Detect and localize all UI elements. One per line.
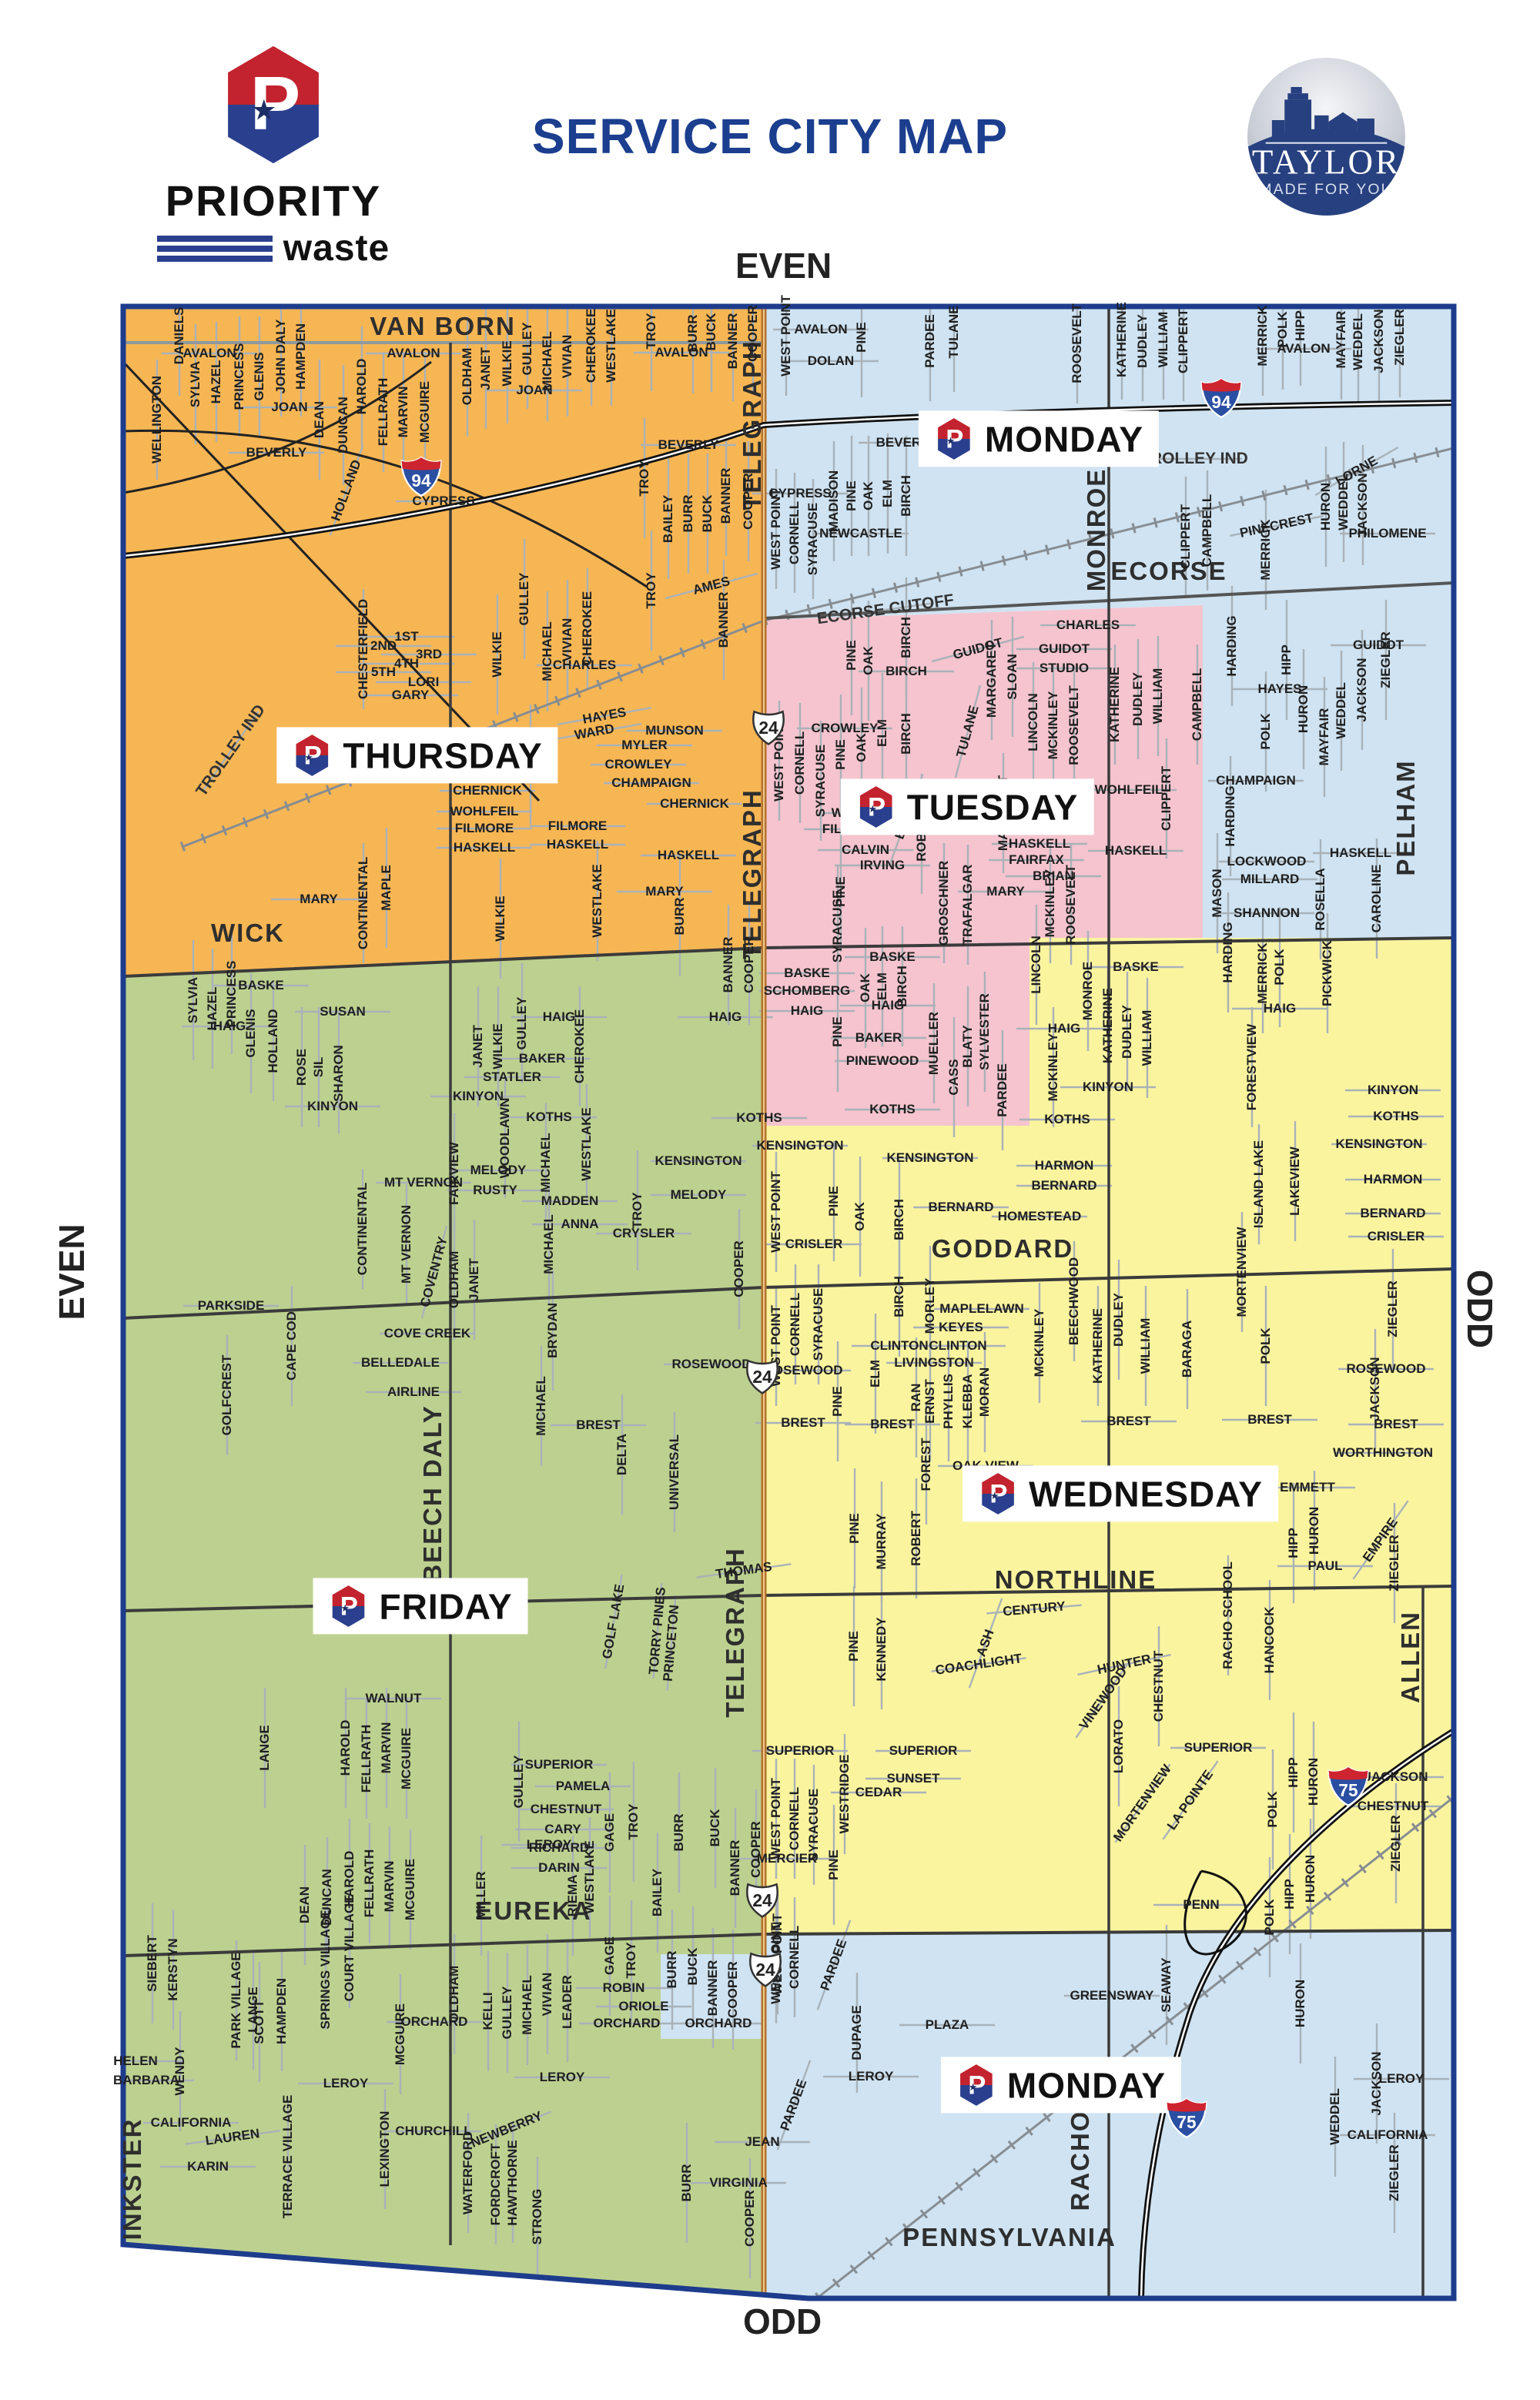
street-label: 2ND — [370, 638, 397, 654]
street-label: HURON — [1293, 1980, 1308, 2027]
street-label: OLDHAM — [447, 1251, 462, 1309]
street-label: BRYDAN — [545, 1303, 561, 1358]
street-label: KINYON — [453, 1089, 504, 1104]
street-label: DUDLEY — [1130, 672, 1146, 726]
street-label: SYRACUSE — [830, 890, 845, 962]
street-label: MCGUIRE — [393, 2003, 408, 2065]
street-label: KOTHS — [526, 1110, 572, 1125]
street-label: UNIVERSAL — [667, 1434, 682, 1510]
street-label: CORNELL — [787, 1926, 802, 1989]
street-label: PHYLLIS — [941, 1374, 956, 1429]
street-label: MORAN — [977, 1367, 993, 1417]
street-label: ROSELLA — [1313, 868, 1328, 930]
street-label: SUPERIOR — [1184, 1740, 1253, 1756]
street-label: GREENSWAY — [1070, 1988, 1154, 2003]
street-label: DELTA — [614, 1434, 630, 1475]
street-label: GULLEY — [520, 323, 535, 376]
street-label: ZIEGLER — [1392, 309, 1408, 366]
street-label: TULANE — [946, 306, 962, 359]
svg-text:24: 24 — [755, 1960, 775, 1980]
street-label: MUNSON — [645, 723, 704, 738]
street-label: GOLFCREST — [219, 1355, 235, 1436]
svg-text:24: 24 — [752, 1890, 772, 1910]
street-label: FAIRVIEW — [447, 1142, 462, 1205]
street-label: ERNST — [922, 1379, 938, 1424]
street-label: MICHAEL — [538, 1133, 554, 1192]
street-label: PELHAM — [1391, 759, 1421, 875]
street-label: AVALON — [794, 322, 847, 337]
street-label: MILLARD — [1240, 872, 1299, 887]
street-label: MADDEN — [541, 1193, 599, 1209]
street-label: ELM — [868, 1360, 883, 1387]
service-day-text: FRIDAY — [380, 1585, 513, 1627]
street-label: RAN — [909, 1384, 924, 1412]
street-label: POLK — [1265, 1791, 1281, 1827]
street-label: LEADER — [560, 1975, 575, 2029]
street-label: GULLEY — [517, 573, 532, 626]
street-label: BIRCH — [899, 617, 914, 658]
street-label: KATHERINE — [1114, 302, 1130, 377]
street-label: CRYSLER — [613, 1226, 675, 1241]
street-label: CLINTON — [929, 1338, 986, 1354]
street-label: PARK VILLAGE — [229, 1952, 244, 2048]
svg-text:★: ★ — [340, 1602, 350, 1614]
street-label: ROBIN — [603, 1980, 645, 1996]
street-label: MONROE — [1080, 962, 1096, 1021]
street-label: BANNER — [716, 592, 731, 648]
street-label: RIEMA — [565, 1875, 581, 1917]
street-label: HASKELL — [454, 840, 515, 855]
street-label: AIRLINE — [387, 1384, 440, 1400]
street-label: WELLINGTON — [149, 376, 165, 464]
street-label: CHESTNUT — [531, 1802, 602, 1817]
street-label: WILKIE — [490, 1023, 506, 1069]
service-day-label-friday: P★FRIDAY — [313, 1578, 528, 1634]
street-label: ORCHARD — [401, 2014, 468, 2030]
service-day-text: MONDAY — [985, 418, 1143, 460]
street-label: OAK — [861, 646, 876, 675]
street-label: WILKIE — [500, 340, 515, 387]
street-label: DUNCAN — [336, 397, 351, 454]
street-label: AVALON — [1277, 341, 1330, 356]
street-label: HELEN — [113, 2054, 158, 2069]
street-label: KOTHS — [1044, 1112, 1090, 1127]
street-label: ELM — [875, 719, 890, 747]
street-label: VIRGINIA — [709, 2175, 768, 2191]
service-day-label-tuesday: P★TUESDAY — [841, 778, 1094, 835]
street-label: TROY — [624, 1942, 639, 1978]
street-label: HAMPDEN — [293, 323, 309, 390]
street-label: MICHAEL — [541, 1214, 557, 1274]
street-label: BANNER — [725, 313, 741, 370]
street-label: CALVIN — [842, 842, 889, 858]
street-label: ELM — [880, 480, 896, 507]
street-label: MELODY — [671, 1187, 727, 1203]
street-label: MARGARET — [984, 642, 999, 718]
street-label: JOAN — [271, 400, 307, 415]
street-label: MAYFAIR — [1317, 708, 1332, 766]
street-label: SUPERIOR — [766, 1743, 835, 1759]
street-label: DUDLEY — [1135, 314, 1150, 368]
street-label: STATLER — [483, 1069, 541, 1085]
street-label: MERRICK — [1255, 305, 1270, 366]
street-label: PARDEE — [922, 314, 938, 368]
street-label: HURON — [1306, 1758, 1321, 1806]
street-label: BANNER — [728, 1840, 743, 1896]
street-label: KENSINGTON — [654, 1153, 742, 1169]
street-label: MCKINLEY — [1046, 1033, 1061, 1102]
street-label: PINE — [826, 1849, 842, 1880]
street-label: JANET — [467, 1258, 482, 1301]
street-label: HAYES — [1257, 681, 1301, 697]
street-label: ROOSEVELT — [1066, 685, 1082, 765]
street-label: ORCHARD — [594, 2016, 661, 2031]
street-label: HASKELL — [1330, 845, 1391, 861]
street-label: TERRACE VILLAGE — [280, 2095, 296, 2219]
street-label: WESTLAKE — [604, 309, 619, 382]
street-label: BELLEDALE — [361, 1355, 440, 1371]
street-label: HAWTHORNE — [505, 2140, 521, 2225]
street-label: WATERFORD — [460, 2131, 476, 2214]
street-label: ZIEGLER — [1378, 631, 1394, 688]
street-label: BREST — [870, 1417, 915, 1432]
street-label: BREST — [1374, 1417, 1418, 1432]
street-label: KENSINGTON — [1335, 1136, 1422, 1152]
street-label: CORNELL — [792, 731, 808, 795]
street-label: FORESTVIEW — [1244, 1024, 1260, 1110]
street-label: CONTINENTAL — [356, 857, 371, 950]
street-label: CONTINENTAL — [355, 1183, 370, 1276]
street-label: HAIG — [213, 1019, 246, 1034]
street-label: CEDAR — [855, 1785, 902, 1800]
street-label: DUDLEY — [1120, 1005, 1135, 1059]
street-label: LEROY — [540, 2070, 585, 2085]
street-label: BAKER — [855, 1030, 902, 1046]
highway-shield-us-24: 24 — [748, 707, 789, 752]
street-label: HARDING — [1220, 922, 1236, 982]
street-label: OAK — [852, 1202, 868, 1231]
street-label: HASKELL — [547, 837, 608, 852]
street-label: RUSTY — [473, 1183, 517, 1198]
street-label: SHANNON — [1234, 905, 1300, 921]
street-label: MCGUIRE — [417, 381, 433, 443]
street-label: LEROY — [527, 1837, 572, 1853]
street-label: WILKIE — [493, 895, 508, 942]
street-label: ZIEGLER — [1385, 1280, 1401, 1337]
street-label: SYRACUSE — [805, 503, 821, 575]
street-label: JACKSON — [1354, 658, 1370, 721]
svg-text:24: 24 — [752, 1367, 772, 1387]
street-label: KEYES — [939, 1320, 983, 1335]
street-label: WEST POINT — [768, 488, 784, 570]
street-label: SPRINGS VILLAGE — [318, 1910, 333, 2030]
street-label: BARAGA — [1180, 1321, 1195, 1378]
street-label: LANGE — [257, 1725, 273, 1771]
street-label: PINEWOOD — [846, 1053, 919, 1069]
street-label: BURR — [672, 897, 688, 935]
street-label: JOAN — [516, 383, 552, 398]
street-label: PARDEE — [995, 1063, 1010, 1117]
street-label: MCKINLEY — [1043, 869, 1058, 938]
street-label: JEAN — [745, 2134, 779, 2150]
street-label: HASKELL — [1105, 843, 1167, 859]
street-label: COOPER — [742, 936, 757, 993]
street-label: EMMETT — [1280, 1480, 1335, 1495]
street-label: WESTLAKE — [579, 1107, 594, 1180]
street-label: BURR — [665, 1950, 680, 1988]
street-label: BAKER — [519, 1051, 565, 1066]
street-label: HURON — [1318, 483, 1334, 531]
svg-text:★: ★ — [946, 435, 956, 447]
service-day-label-monday: P★MONDAY — [919, 410, 1159, 467]
street-label: INKSTER — [118, 2118, 147, 2241]
street-label: HIPP — [1286, 1757, 1301, 1788]
street-label: VIVIAN — [560, 335, 575, 379]
street-label: BEVERLY — [246, 445, 307, 460]
street-label: KOTHS — [869, 1102, 916, 1117]
street-label: HARMON — [1035, 1158, 1094, 1173]
street-label: CRISLER — [1368, 1229, 1425, 1244]
street-label: HOMESTEAD — [998, 1209, 1082, 1224]
street-label: CLINTON — [870, 1338, 928, 1354]
street-label: FOREST — [919, 1438, 934, 1491]
street-label: KENSINGTON — [886, 1150, 973, 1166]
street-label: NEWCASTLE — [819, 526, 902, 541]
street-label: SUSAN — [320, 1004, 366, 1019]
street-label: GUIDOT — [1039, 641, 1090, 657]
street-label: CAMPBELL — [1200, 494, 1215, 567]
street-label: GROSCHNER — [936, 861, 952, 946]
street-label: WORTHINGTON — [1333, 1445, 1433, 1461]
street-label: POLK — [1258, 713, 1274, 749]
street-label: CORNELL — [787, 501, 802, 564]
street-label: HURON — [1303, 1855, 1318, 1903]
street-label: POLK — [1258, 1327, 1274, 1364]
street-label: WILLIAM — [1140, 1010, 1155, 1066]
street-label: FELLRATH — [359, 1725, 374, 1792]
street-label: WESTLAKE — [590, 864, 605, 937]
street-label: PLAZA — [926, 2017, 969, 2033]
street-label: CORNELL — [787, 1787, 802, 1850]
street-label: MERRICK — [1255, 942, 1270, 1003]
highway-shield-interstate-94: 94 — [399, 454, 444, 503]
street-label: HIPP — [1279, 644, 1294, 675]
svg-text:★: ★ — [869, 803, 878, 815]
street-label: WALNUT — [366, 1691, 422, 1706]
street-label: WOHLFEIL — [450, 804, 519, 819]
street-label: JANET — [478, 347, 494, 390]
street-label: PHILOMENE — [1348, 526, 1426, 541]
street-label: GULLEY — [500, 1987, 515, 2040]
street-label: BREST — [1247, 1412, 1292, 1428]
street-label: BURR — [671, 1813, 687, 1851]
street-label: CROWLEY — [605, 757, 672, 772]
street-label: GULLEY — [514, 997, 530, 1050]
street-label: BUCK — [708, 1809, 723, 1846]
street-label: MCGUIRE — [403, 1859, 418, 1920]
street-label: SYRACUSE — [811, 1288, 826, 1361]
map-canvas: VAN BORNTELEGRAPHTELEGRAPHTELEGRAPHWICKE… — [0, 0, 1540, 2400]
street-label: AVALON — [182, 346, 236, 361]
street-label: JACKSON — [1364, 1769, 1428, 1785]
street-label: MILLER — [474, 1871, 489, 1920]
svg-text:★: ★ — [304, 751, 313, 763]
street-label: VIVIAN — [540, 1973, 555, 2017]
street-label: SUPERIOR — [889, 1743, 958, 1759]
svg-text:★: ★ — [969, 2081, 978, 2093]
street-label: PINE — [830, 1386, 845, 1417]
street-label: MADISON — [826, 470, 842, 532]
street-label: ZIEGLER — [1388, 1815, 1404, 1872]
street-label: 4TH — [394, 656, 419, 671]
street-label: SLOAN — [1005, 654, 1020, 700]
street-label: WILLIAM — [1138, 1318, 1153, 1374]
street-label: MCKINLEY — [1032, 1309, 1047, 1377]
street-label: PINE — [847, 1513, 862, 1544]
street-label: PINE — [844, 480, 859, 511]
street-label: GARY — [392, 688, 430, 703]
street-label: KLEBBA — [960, 1374, 976, 1429]
street-label: PINE — [833, 739, 849, 770]
street-label: ELM — [875, 972, 890, 1000]
street-label: BIRCH — [892, 1199, 907, 1240]
street-label: MURRAY — [874, 1513, 889, 1569]
street-label: HAROLD — [338, 1720, 353, 1776]
street-label: BASKE — [784, 966, 830, 981]
street-label: HASKELL — [658, 848, 719, 863]
street-label: KARIN — [187, 2159, 229, 2174]
street-label: LEROY — [1379, 2071, 1424, 2087]
street-label: JOHN DALY — [273, 320, 289, 394]
street-label: HARDING — [1223, 785, 1238, 846]
street-label: SUNSET — [887, 1771, 940, 1786]
street-label: CHARLES — [1056, 618, 1120, 633]
street-label: HOLLAND — [266, 1009, 281, 1073]
street-label: BREST — [1106, 1414, 1151, 1429]
street-label: BIRCH — [885, 664, 927, 679]
street-label: MERCIER — [757, 1851, 817, 1866]
street-label: AVALON — [387, 346, 440, 361]
street-label: MAPLELAWN — [939, 1301, 1024, 1317]
svg-text:75: 75 — [1338, 1780, 1358, 1800]
street-label: WEDDEL — [1327, 2088, 1343, 2145]
street-label: KINYON — [1083, 1079, 1133, 1095]
street-label: DUDLEY — [1111, 1293, 1127, 1347]
street-label: BASKE — [238, 978, 284, 993]
street-label: BARBARA — [113, 2073, 179, 2088]
street-label: FAIRFAX — [1009, 852, 1064, 868]
street-label: ANNA — [561, 1217, 598, 1232]
street-label: FORDCROFT — [488, 2144, 504, 2226]
street-label: BIRCH — [895, 966, 910, 1007]
street-label: DEAN — [312, 401, 327, 438]
street-label: WEST POINT — [778, 295, 794, 377]
street-label: BERNARD — [929, 1200, 994, 1215]
street-label: HANCOCK — [1262, 1607, 1277, 1674]
street-label: BANNER — [718, 468, 734, 524]
street-label: LAKEVIEW — [1287, 1146, 1303, 1216]
svg-text:94: 94 — [1211, 392, 1231, 412]
street-label: CORNELL — [788, 1293, 803, 1356]
street-label: DEAN — [297, 1886, 313, 1923]
street-label: BAILEY — [661, 495, 676, 543]
street-label: GODDARD — [932, 1234, 1074, 1264]
street-label: HAIG — [709, 1009, 742, 1025]
street-label: LORATO — [1111, 1719, 1127, 1773]
street-label: HAIG — [543, 1009, 576, 1025]
street-label: ROSEWOOD — [672, 1357, 752, 1372]
street-label: JACKSON — [1371, 309, 1387, 373]
street-label: ROBERT — [909, 1511, 924, 1566]
street-label: WEST POINT — [768, 1778, 784, 1859]
street-label: PINE — [846, 1631, 862, 1662]
street-label: STUDIO — [1039, 661, 1089, 676]
street-label: BEECH DALY — [418, 1404, 447, 1583]
street-label: ZIEGLER — [1387, 2144, 1402, 2201]
street-label: CALIFORNIA — [151, 2115, 232, 2131]
svg-text:94: 94 — [411, 470, 431, 490]
street-label: BASKE — [1113, 959, 1159, 975]
street-label: ROOSEVELT — [1063, 865, 1079, 945]
street-label: WOHLFEIL — [1095, 782, 1163, 798]
street-label: BASKE — [869, 949, 916, 965]
street-label: BURR — [681, 494, 696, 532]
street-label: CHEROKEE — [584, 309, 599, 383]
street-label: MUELLER — [926, 1012, 942, 1075]
street-label: SCOTT — [252, 2000, 267, 2044]
street-label: MCKINLEY — [1046, 691, 1061, 760]
service-day-label-thursday: P★THURSDAY — [276, 727, 557, 783]
street-label: MONROE — [1082, 468, 1111, 592]
street-label: CHERNICK — [453, 783, 522, 798]
street-label: WEST POINT — [768, 1171, 784, 1253]
street-label: BAILEY — [650, 1869, 665, 1916]
highway-shield-interstate-75: 75 — [1326, 1764, 1371, 1813]
street-label: COOPER — [731, 1240, 747, 1297]
street-label: BANNER — [721, 937, 736, 993]
service-day-text: THURSDAY — [343, 735, 542, 776]
street-label: CRISLER — [785, 1237, 843, 1252]
street-label: PINE — [854, 322, 869, 353]
street-label: PINE — [826, 1186, 842, 1217]
street-label: PRINCESS — [232, 343, 247, 410]
street-label: COOPER — [745, 305, 761, 362]
street-label: RACHO SCHOOL — [1220, 1562, 1236, 1669]
street-label: LEXINGTON — [377, 2111, 393, 2187]
street-label: KENNEDY — [874, 1617, 889, 1681]
street-label: SUPERIOR — [525, 1757, 594, 1772]
street-label: PARKSIDE — [198, 1298, 265, 1314]
street-label: KELLI — [480, 1992, 496, 2030]
street-label: MT VERNON — [384, 1175, 463, 1190]
street-label: TROY — [644, 313, 659, 349]
street-label: COVE CREEK — [384, 1326, 470, 1341]
street-label: KERSTYN — [166, 1938, 181, 2000]
street-label: OAK — [861, 481, 876, 510]
street-label: DARIN — [538, 1860, 580, 1876]
street-label: MORLEY — [922, 1278, 938, 1334]
street-label: LEROY — [323, 2076, 369, 2091]
street-label: MYLER — [621, 738, 668, 753]
street-label: MARY — [986, 884, 1024, 899]
street-label: PENN — [1183, 1897, 1219, 1913]
zone-thursday-orange — [123, 306, 764, 976]
street-label: SYLVESTER — [977, 993, 993, 1070]
street-label: SCHOMBERG — [764, 983, 850, 999]
street-label: COOPER — [725, 1961, 741, 2018]
street-label: HAIG — [791, 1003, 824, 1019]
highway-shield-interstate-94: 94 — [1199, 376, 1244, 424]
